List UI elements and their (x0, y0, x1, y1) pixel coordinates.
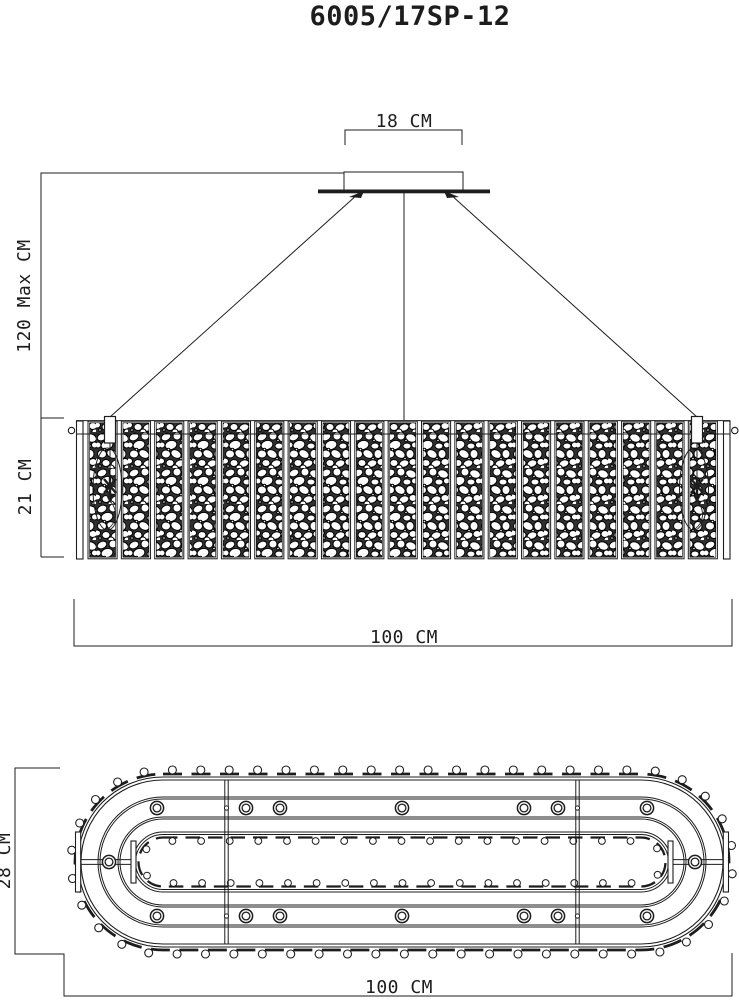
outer-bead (453, 766, 461, 774)
ceiling-canopy (344, 172, 463, 190)
crystal-panel-texture (190, 423, 216, 557)
inner-bead (313, 880, 320, 887)
outer-bead (566, 766, 574, 774)
crystal-panel-texture (490, 423, 516, 557)
inner-bead (143, 846, 150, 853)
lamp-socket (150, 801, 163, 814)
outer-bead (718, 815, 726, 823)
dim-label-front-width: 100 CM (370, 627, 438, 648)
crystal-panel-texture (223, 423, 249, 557)
crystal-panel-texture (356, 423, 382, 557)
lamp-socket (517, 801, 530, 814)
body-rail-left (77, 421, 84, 559)
lamp-socket (102, 855, 115, 868)
inner-bead (312, 838, 319, 845)
lamp-socket (640, 909, 653, 922)
inner-bead (256, 880, 263, 887)
crystal-panel-texture (623, 423, 649, 557)
inner-bead (427, 838, 434, 845)
crystal-panel-texture (590, 423, 616, 557)
canopy-plate (318, 190, 490, 194)
outer-bead (514, 950, 522, 958)
inner-bead (627, 838, 634, 845)
lamp-band-outer-edge-inner (100, 799, 704, 925)
crystal-panel-texture (156, 423, 182, 557)
front-elevation-view: 18 CM 120 Max CM 21 CM 100 CM (14, 111, 738, 648)
top-plan-view: 28 CM 100 CM (0, 766, 736, 998)
outer-bead (682, 938, 690, 946)
outer-bead (78, 901, 86, 909)
outer-bead (68, 846, 76, 854)
outer-bead (396, 766, 404, 774)
inner-bead (428, 880, 435, 887)
lamp-socket (239, 909, 252, 922)
outer-rim-segments (75, 774, 729, 950)
crystal-panel-texture (557, 423, 583, 557)
outer-bead (310, 766, 318, 774)
inner-bead (600, 880, 607, 887)
inner-bead (255, 838, 262, 845)
lamp-socket (517, 909, 530, 922)
outer-bead (542, 950, 550, 958)
model-number-title: 6005/17SP-12 (309, 1, 510, 32)
crystal-panel-texture (123, 423, 149, 557)
crystal-panel-texture (657, 423, 683, 557)
outer-bead (202, 950, 210, 958)
lamp-socket (688, 855, 701, 868)
outer-bead (315, 950, 323, 958)
outer-bead (339, 766, 347, 774)
tie-pin (575, 914, 579, 918)
crystal-panel-texture (290, 423, 316, 557)
inner-bead (628, 880, 635, 887)
outer-bead (628, 950, 636, 958)
inner-bead (170, 880, 177, 887)
inner-bead (341, 838, 348, 845)
outer-bead (145, 949, 153, 957)
outer-bead (595, 766, 603, 774)
outer-bead (678, 776, 686, 784)
turnbuckle-left (105, 417, 116, 444)
apex-bar (723, 832, 728, 892)
inner-bead (144, 872, 151, 879)
crystal-panel-texture (390, 423, 416, 557)
crystal-panel-texture (456, 423, 482, 557)
lamp-socket (640, 801, 653, 814)
inner-bead (169, 838, 176, 845)
outer-bead (282, 766, 290, 774)
outer-bead (486, 950, 494, 958)
inner-bead (514, 880, 521, 887)
tie-pin (224, 806, 228, 810)
inner-bead (654, 845, 661, 852)
inner-bead (371, 880, 378, 887)
technical-drawing: 6005/17SP-12 18 CM 120 Max CM 21 CM 100 … (0, 0, 739, 1000)
outer-bead (95, 924, 103, 932)
turnbuckle-right (692, 417, 703, 444)
lamp-socket (395, 801, 408, 814)
outer-bead (168, 766, 176, 774)
outer-bead (230, 950, 238, 958)
hanger-ring-right (732, 427, 738, 433)
apex-bar (76, 832, 81, 892)
lamp-socket (551, 909, 564, 922)
tie-pin (575, 806, 579, 810)
outer-bead (372, 950, 380, 958)
lamp-socket (150, 909, 163, 922)
outer-bead (114, 778, 122, 786)
inner-bead (226, 838, 233, 845)
crystal-panel-row (88, 421, 717, 559)
inner-bead (485, 880, 492, 887)
outer-bead (258, 950, 266, 958)
inner-bead (456, 880, 463, 887)
outer-bead (623, 766, 631, 774)
suspension-cable-left (110, 194, 358, 417)
outer-bead (571, 950, 579, 958)
inner-bead (484, 838, 491, 845)
lamp-socket (239, 801, 252, 814)
inner-bead (198, 838, 205, 845)
outer-bead (367, 766, 375, 774)
outer-bead (728, 870, 736, 878)
crystal-panel-texture (423, 423, 449, 557)
outer-bead (651, 767, 659, 775)
inner-bead (284, 838, 291, 845)
outer-bead (92, 796, 100, 804)
dim-line-canopy-width (345, 130, 462, 145)
inner-bead (542, 880, 549, 887)
inner-bead (285, 880, 292, 887)
outer-bead (720, 897, 728, 905)
outer-bead (140, 768, 148, 776)
outer-bead (457, 950, 465, 958)
apex-bar (131, 841, 136, 883)
outer-bead (400, 950, 408, 958)
crystal-panel-texture (256, 423, 282, 557)
outer-bead (705, 921, 713, 929)
hanger-ring-left (68, 427, 74, 433)
inner-bead (455, 838, 462, 845)
outer-bead (344, 950, 352, 958)
outer-bead (118, 940, 126, 948)
outer-bead (429, 950, 437, 958)
tie-pin (224, 914, 228, 918)
lamp-socket (551, 801, 564, 814)
lamp-socket (395, 909, 408, 922)
dim-label-canopy-width: 18 CM (376, 111, 433, 132)
outer-bead (76, 819, 84, 827)
outer-bead (701, 792, 709, 800)
inner-bead (398, 838, 405, 845)
outer-bead (599, 950, 607, 958)
crystal-panel-texture (323, 423, 349, 557)
lamp-socket (273, 801, 286, 814)
dim-label-plan-width: 100 CM (365, 977, 433, 998)
inner-bead (654, 871, 661, 878)
inner-bead (199, 880, 206, 887)
outer-bead (509, 766, 517, 774)
outer-bead (538, 766, 546, 774)
inner-bead (342, 880, 349, 887)
plan-rings (68, 766, 736, 958)
apex-bar (668, 841, 673, 883)
outer-bead (173, 950, 181, 958)
suspension-cable-right (450, 194, 697, 417)
dim-label-body-height: 21 CM (15, 459, 36, 516)
outer-bead (225, 766, 233, 774)
inner-bead (599, 838, 606, 845)
outer-bead (197, 766, 205, 774)
body-rail-right (724, 421, 731, 559)
lamp-socket (273, 909, 286, 922)
dim-label-plan-depth: 28 CM (0, 833, 15, 890)
inner-bead (399, 880, 406, 887)
inner-bead (513, 838, 520, 845)
outer-bead (254, 766, 262, 774)
crystal-panel-texture (523, 423, 549, 557)
inner-bead (370, 838, 377, 845)
outer-bead (656, 948, 664, 956)
inner-bead (571, 880, 578, 887)
drawing-sheet: 6005/17SP-12 18 CM 120 Max CM 21 CM 100 … (0, 0, 739, 1000)
inner-bead (541, 838, 548, 845)
dim-label-max-height: 120 Max CM (14, 239, 35, 352)
outer-bead (424, 766, 432, 774)
lamp-band-inner-edge (118, 817, 686, 907)
outer-bead (481, 766, 489, 774)
outer-bead (287, 950, 295, 958)
